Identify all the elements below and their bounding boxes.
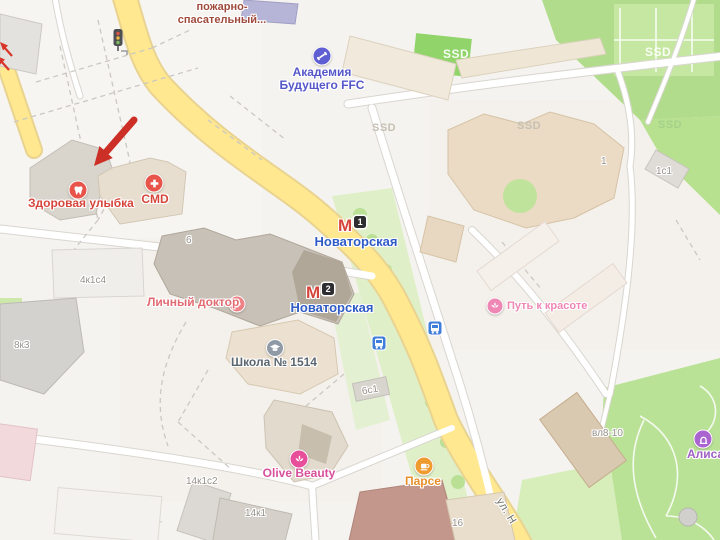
area-label: SSD <box>658 119 682 131</box>
metro-exit-badge: 1 <box>354 216 366 228</box>
poi-label-fire-station: пожарно-спасательный... <box>178 1 266 27</box>
poi-label-beauty-path[interactable]: Путь к красоте <box>507 300 587 313</box>
medical-cross-icon[interactable] <box>145 174 164 193</box>
building-number: 8к3 <box>14 340 30 351</box>
poi-label-personal-doctor[interactable]: Личный доктор <box>147 296 239 309</box>
metro-station-marker-2[interactable]: М 2 <box>306 285 334 300</box>
metro-station-marker-1[interactable]: М 1 <box>338 218 366 233</box>
dumbbell-icon[interactable] <box>313 47 332 66</box>
building-number: 16 <box>452 518 463 529</box>
map-canvas[interactable]: М 1 Новаторская М 2 Новаторская пожарно-… <box>0 0 720 540</box>
attraction-arch-icon[interactable] <box>694 430 713 449</box>
building-number: 14к1с2 <box>186 476 218 487</box>
poi-label-school[interactable]: Школа № 1514 <box>231 356 317 369</box>
metro-m-icon: М <box>338 218 352 233</box>
bus-stop-icon[interactable] <box>372 336 386 350</box>
area-label: SSD <box>645 45 671 59</box>
poi-label-cmd[interactable]: CMD <box>141 193 168 206</box>
roundabout-circle <box>679 508 697 526</box>
poi-label-olive-beauty[interactable]: Olive Beauty <box>263 467 336 480</box>
metro-station-label[interactable]: Новаторская <box>314 234 397 249</box>
poi-label-parse[interactable]: Парсе <box>405 475 441 488</box>
building-number: 1 <box>601 156 607 167</box>
building-number: 6 <box>186 235 192 246</box>
metro-station-label[interactable]: Новаторская <box>290 300 373 315</box>
building-number: вл8-10 <box>592 428 623 439</box>
building-number: 4к1с4 <box>80 275 106 286</box>
area-label: SSD <box>372 122 396 134</box>
bus-stop-icon[interactable] <box>428 321 442 335</box>
poi-label-alisa[interactable]: Алиса <box>687 448 720 461</box>
metro-m-icon: М <box>306 285 320 300</box>
area-label: SSD <box>443 47 469 61</box>
cafe-cup-icon[interactable] <box>415 457 434 476</box>
area-label: SSD <box>517 120 541 132</box>
metro-exit-badge: 2 <box>322 283 334 295</box>
building-number: 14к1 <box>245 508 266 519</box>
poi-label-academy[interactable]: АкадемияБудущего FFC <box>280 66 365 92</box>
building-number: 1с1 <box>656 166 672 177</box>
spa-lotus-icon[interactable] <box>487 298 504 315</box>
poi-label-healthy-smile[interactable]: Здоровая улыбка <box>28 197 134 210</box>
